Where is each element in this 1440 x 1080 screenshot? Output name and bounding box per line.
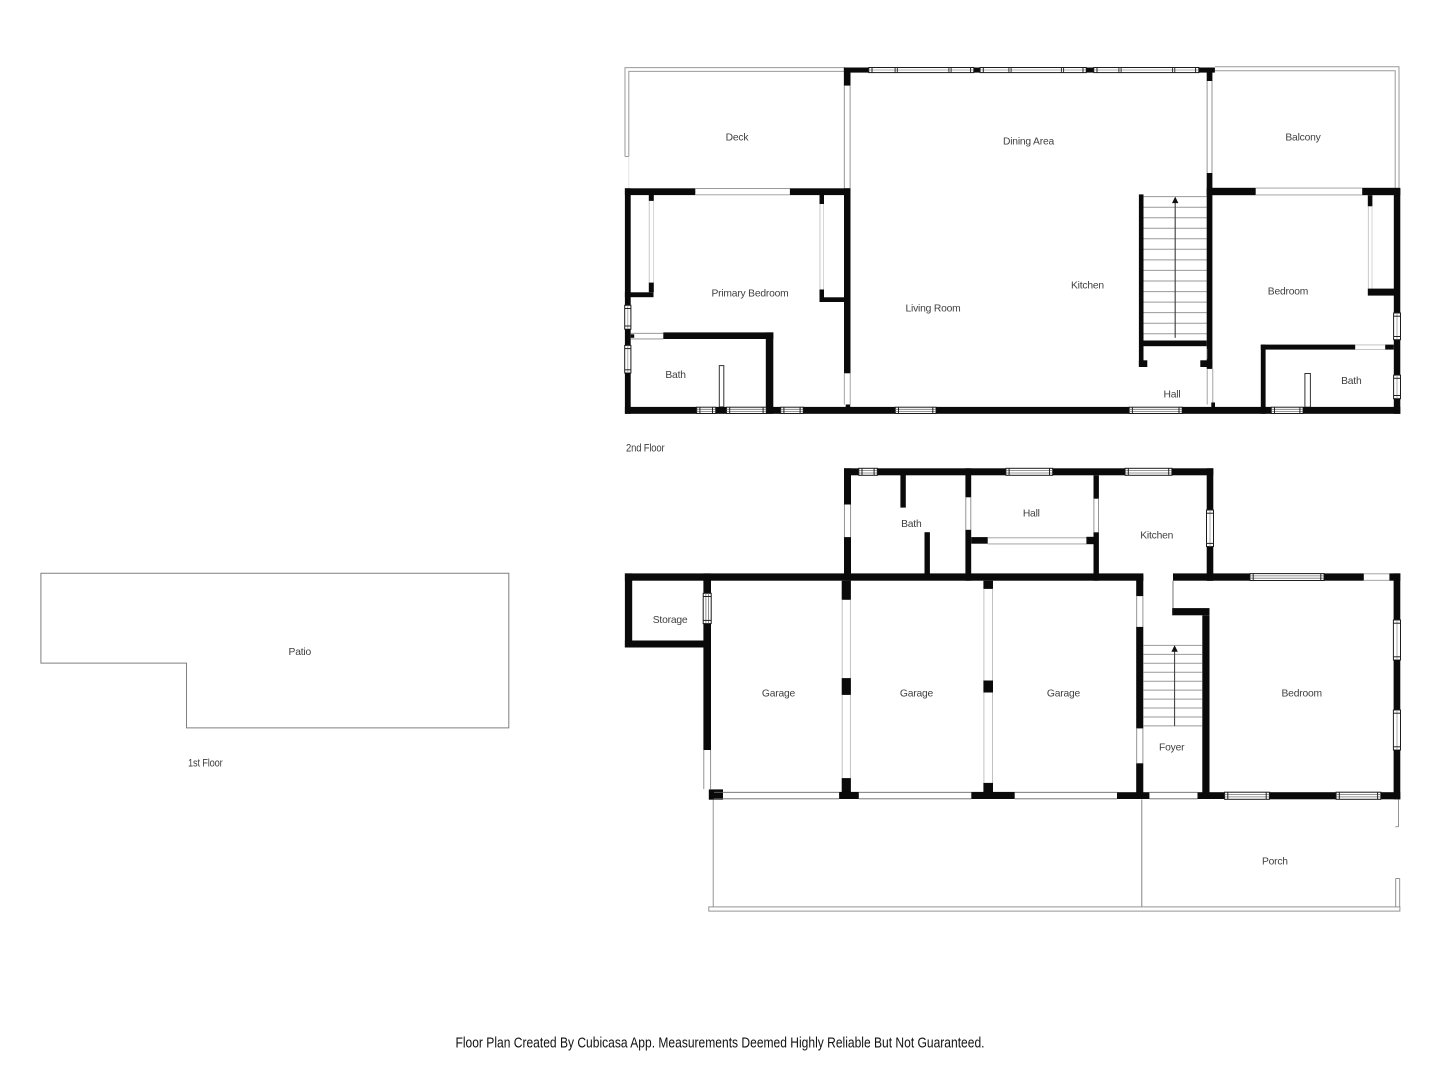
svg-text:Porch: Porch xyxy=(1262,857,1288,868)
svg-text:1st Floor: 1st Floor xyxy=(188,758,223,770)
svg-text:Hall: Hall xyxy=(1023,509,1040,520)
svg-text:Bath: Bath xyxy=(665,370,686,381)
svg-text:Dining Area: Dining Area xyxy=(1003,137,1055,148)
svg-text:Patio: Patio xyxy=(289,647,312,658)
svg-text:Garage: Garage xyxy=(900,689,934,700)
svg-text:Balcony: Balcony xyxy=(1285,133,1321,144)
svg-text:Hall: Hall xyxy=(1164,390,1181,401)
svg-text:Storage: Storage xyxy=(653,615,688,626)
svg-text:Foyer: Foyer xyxy=(1159,743,1185,754)
svg-text:2nd Floor: 2nd Floor xyxy=(626,443,665,455)
svg-text:Bedroom: Bedroom xyxy=(1268,287,1308,298)
svg-text:Kitchen: Kitchen xyxy=(1071,281,1104,292)
svg-text:Kitchen: Kitchen xyxy=(1140,530,1173,541)
svg-text:Garage: Garage xyxy=(762,689,796,700)
svg-text:Living Room: Living Room xyxy=(905,304,960,315)
svg-text:Primary Bedroom: Primary Bedroom xyxy=(711,289,788,300)
svg-text:Bedroom: Bedroom xyxy=(1282,689,1322,700)
svg-text:Garage: Garage xyxy=(1047,689,1081,700)
svg-text:Bath: Bath xyxy=(901,519,922,530)
svg-text:Deck: Deck xyxy=(726,133,750,144)
svg-text:Floor Plan Created By Cubicasa: Floor Plan Created By Cubicasa App. Meas… xyxy=(456,1035,985,1052)
svg-text:Bath: Bath xyxy=(1341,376,1362,387)
